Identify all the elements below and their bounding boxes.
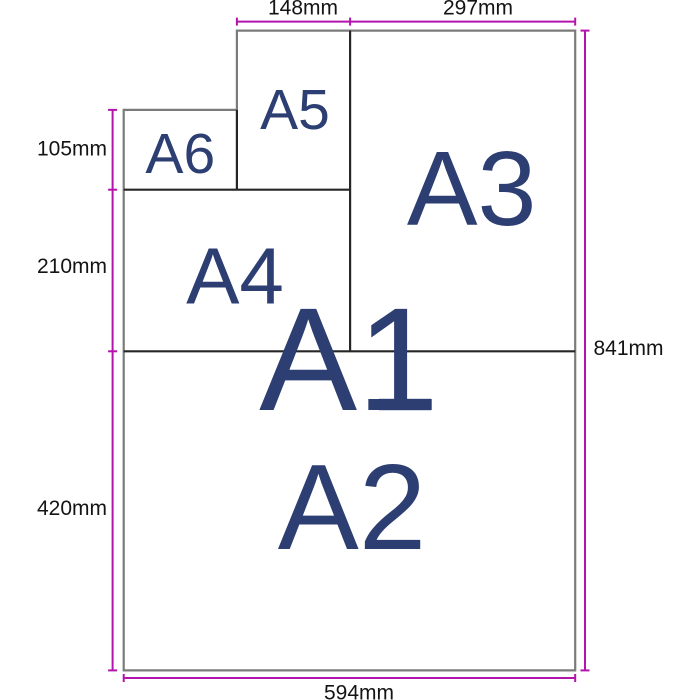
svg-text:210mm: 210mm — [37, 255, 107, 278]
svg-text:841mm: 841mm — [593, 337, 663, 360]
svg-text:297mm: 297mm — [443, 0, 513, 20]
svg-text:420mm: 420mm — [37, 497, 107, 520]
svg-text:A1: A1 — [259, 278, 439, 442]
svg-text:105mm: 105mm — [37, 138, 107, 161]
svg-text:A3: A3 — [407, 130, 537, 248]
svg-text:148mm: 148mm — [268, 0, 338, 20]
svg-text:594mm: 594mm — [324, 682, 394, 700]
svg-text:A6: A6 — [145, 122, 215, 186]
svg-text:A5: A5 — [260, 78, 330, 142]
svg-text:A2: A2 — [278, 439, 427, 575]
